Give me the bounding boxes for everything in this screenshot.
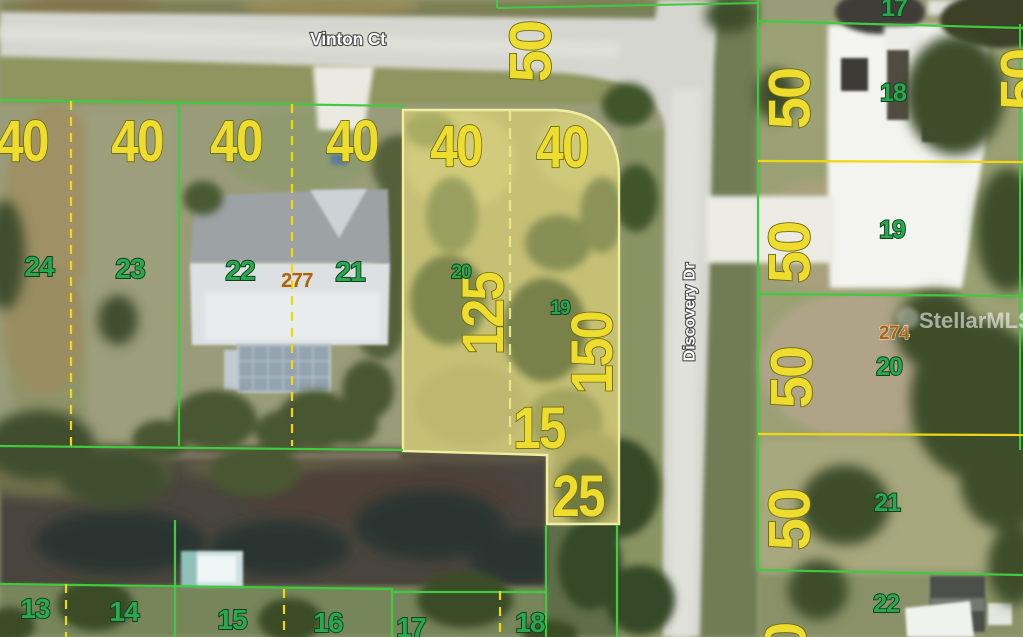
svg-text:17: 17 bbox=[396, 612, 426, 637]
svg-text:20: 20 bbox=[451, 262, 471, 283]
svg-text:Vinton Ct: Vinton Ct bbox=[310, 29, 386, 49]
svg-text:50: 50 bbox=[754, 624, 819, 637]
svg-text:50: 50 bbox=[990, 50, 1023, 111]
svg-text:Discovery Dr: Discovery Dr bbox=[682, 263, 699, 362]
svg-text:19: 19 bbox=[550, 298, 570, 319]
svg-text:StellarMLS: StellarMLS bbox=[919, 308, 1023, 333]
svg-text:22: 22 bbox=[873, 590, 899, 618]
svg-text:25: 25 bbox=[552, 464, 604, 529]
svg-text:40: 40 bbox=[210, 109, 261, 174]
svg-text:277: 277 bbox=[281, 270, 313, 292]
svg-text:40: 40 bbox=[430, 114, 481, 179]
svg-text:20: 20 bbox=[876, 353, 902, 381]
svg-text:18: 18 bbox=[880, 79, 907, 107]
svg-text:50: 50 bbox=[758, 69, 823, 130]
svg-text:50: 50 bbox=[758, 490, 823, 551]
svg-text:50: 50 bbox=[758, 223, 823, 284]
svg-text:22: 22 bbox=[225, 255, 255, 286]
svg-text:18: 18 bbox=[515, 607, 545, 637]
svg-text:40: 40 bbox=[0, 109, 48, 174]
svg-text:150: 150 bbox=[559, 312, 624, 394]
svg-text:15: 15 bbox=[513, 396, 565, 461]
svg-text:15: 15 bbox=[217, 604, 247, 635]
svg-text:24: 24 bbox=[24, 251, 55, 282]
svg-text:50: 50 bbox=[760, 348, 825, 409]
svg-text:14: 14 bbox=[109, 596, 140, 627]
svg-text:13: 13 bbox=[20, 593, 50, 624]
svg-text:23: 23 bbox=[115, 253, 145, 284]
svg-text:40: 40 bbox=[111, 109, 162, 174]
svg-text:17: 17 bbox=[881, 0, 907, 22]
svg-text:19: 19 bbox=[879, 216, 905, 244]
svg-text:125: 125 bbox=[450, 272, 515, 355]
svg-text:16: 16 bbox=[313, 607, 343, 637]
svg-text:50: 50 bbox=[499, 22, 564, 83]
svg-text:40: 40 bbox=[326, 109, 377, 174]
svg-text:21: 21 bbox=[874, 489, 901, 517]
svg-text:40: 40 bbox=[536, 115, 587, 180]
svg-text:21: 21 bbox=[335, 256, 365, 287]
